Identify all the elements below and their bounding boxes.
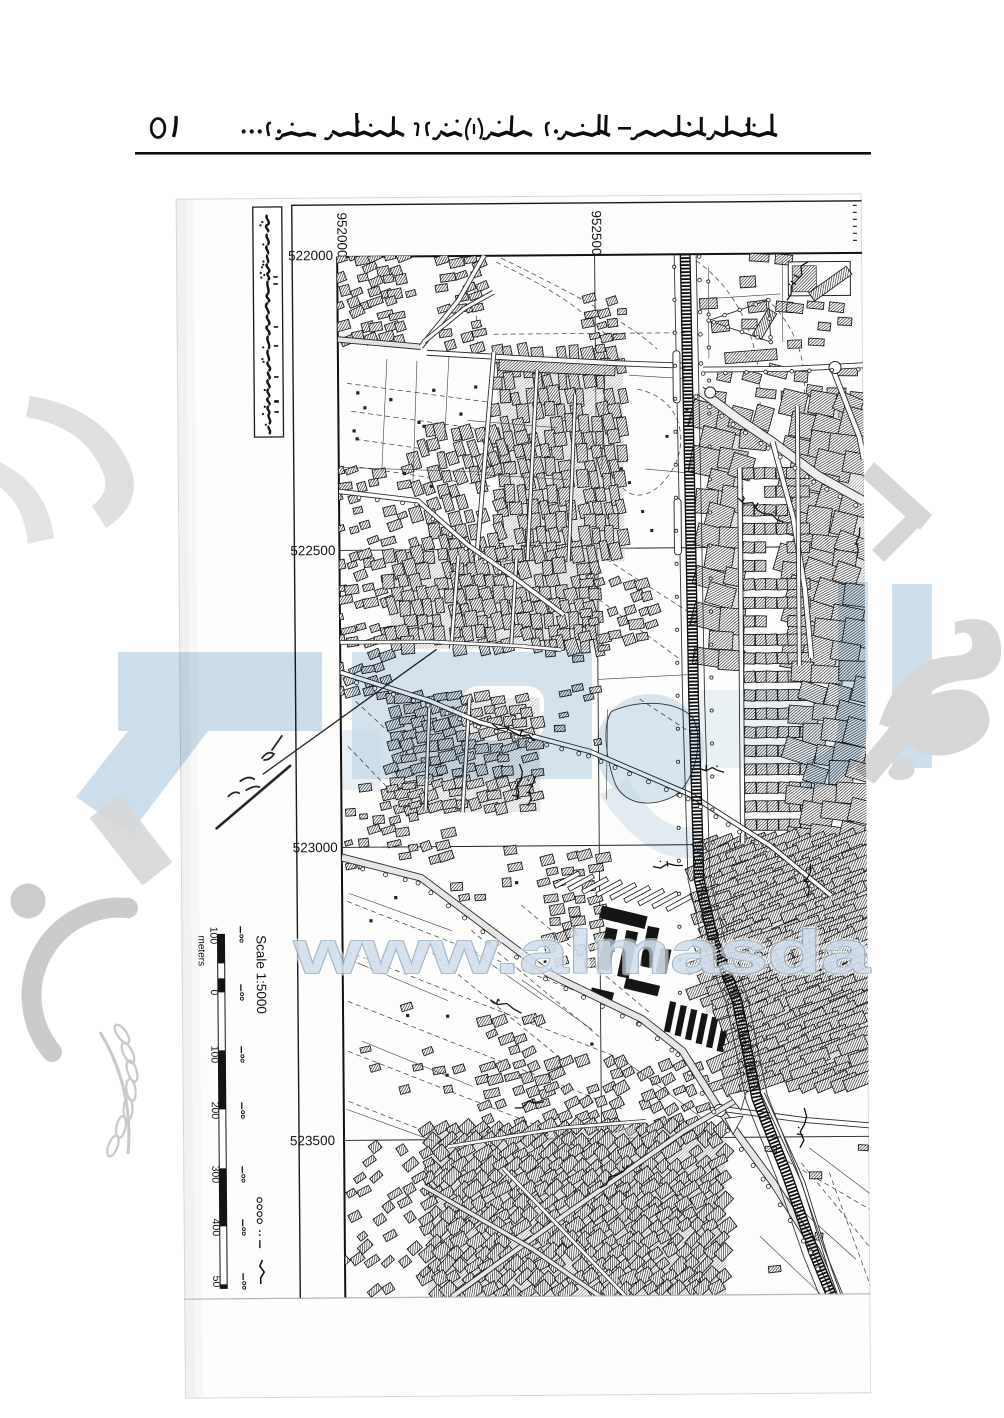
svg-text:523500: 523500 (290, 1133, 335, 1148)
svg-text:952000: 952000 (334, 212, 349, 257)
svg-text:100: 100 (208, 1046, 220, 1064)
svg-text:522000: 522000 (288, 248, 333, 263)
svg-text:www.almasda: www.almasda (293, 919, 871, 986)
svg-text:200: 200 (209, 1102, 221, 1120)
svg-text:100: 100 (207, 927, 219, 945)
svg-text:300: 300 (209, 1166, 221, 1184)
svg-text:523000: 523000 (293, 840, 338, 855)
svg-text:Scale 1:5000: Scale 1:5000 (253, 935, 269, 1014)
svg-text:400: 400 (210, 1219, 222, 1237)
svg-text:50: 50 (210, 1276, 222, 1288)
svg-text:0: 0 (208, 989, 220, 995)
svg-text:952500: 952500 (589, 210, 604, 255)
svg-text:522500: 522500 (290, 543, 335, 558)
svg-text:meters: meters (195, 935, 206, 966)
